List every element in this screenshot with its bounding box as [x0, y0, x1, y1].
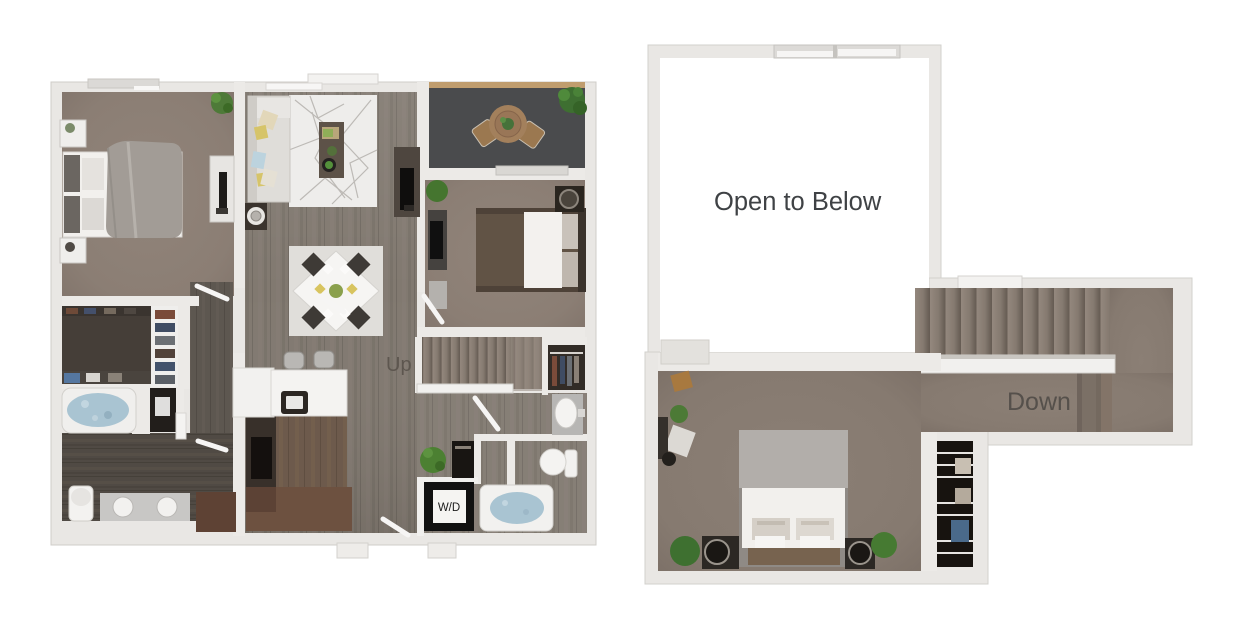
svg-text:Open to Below: Open to Below [714, 188, 882, 216]
svg-text:Up: Up [386, 354, 412, 376]
svg-text:Down: Down [1007, 388, 1071, 416]
svg-text:W/D: W/D [438, 502, 460, 514]
